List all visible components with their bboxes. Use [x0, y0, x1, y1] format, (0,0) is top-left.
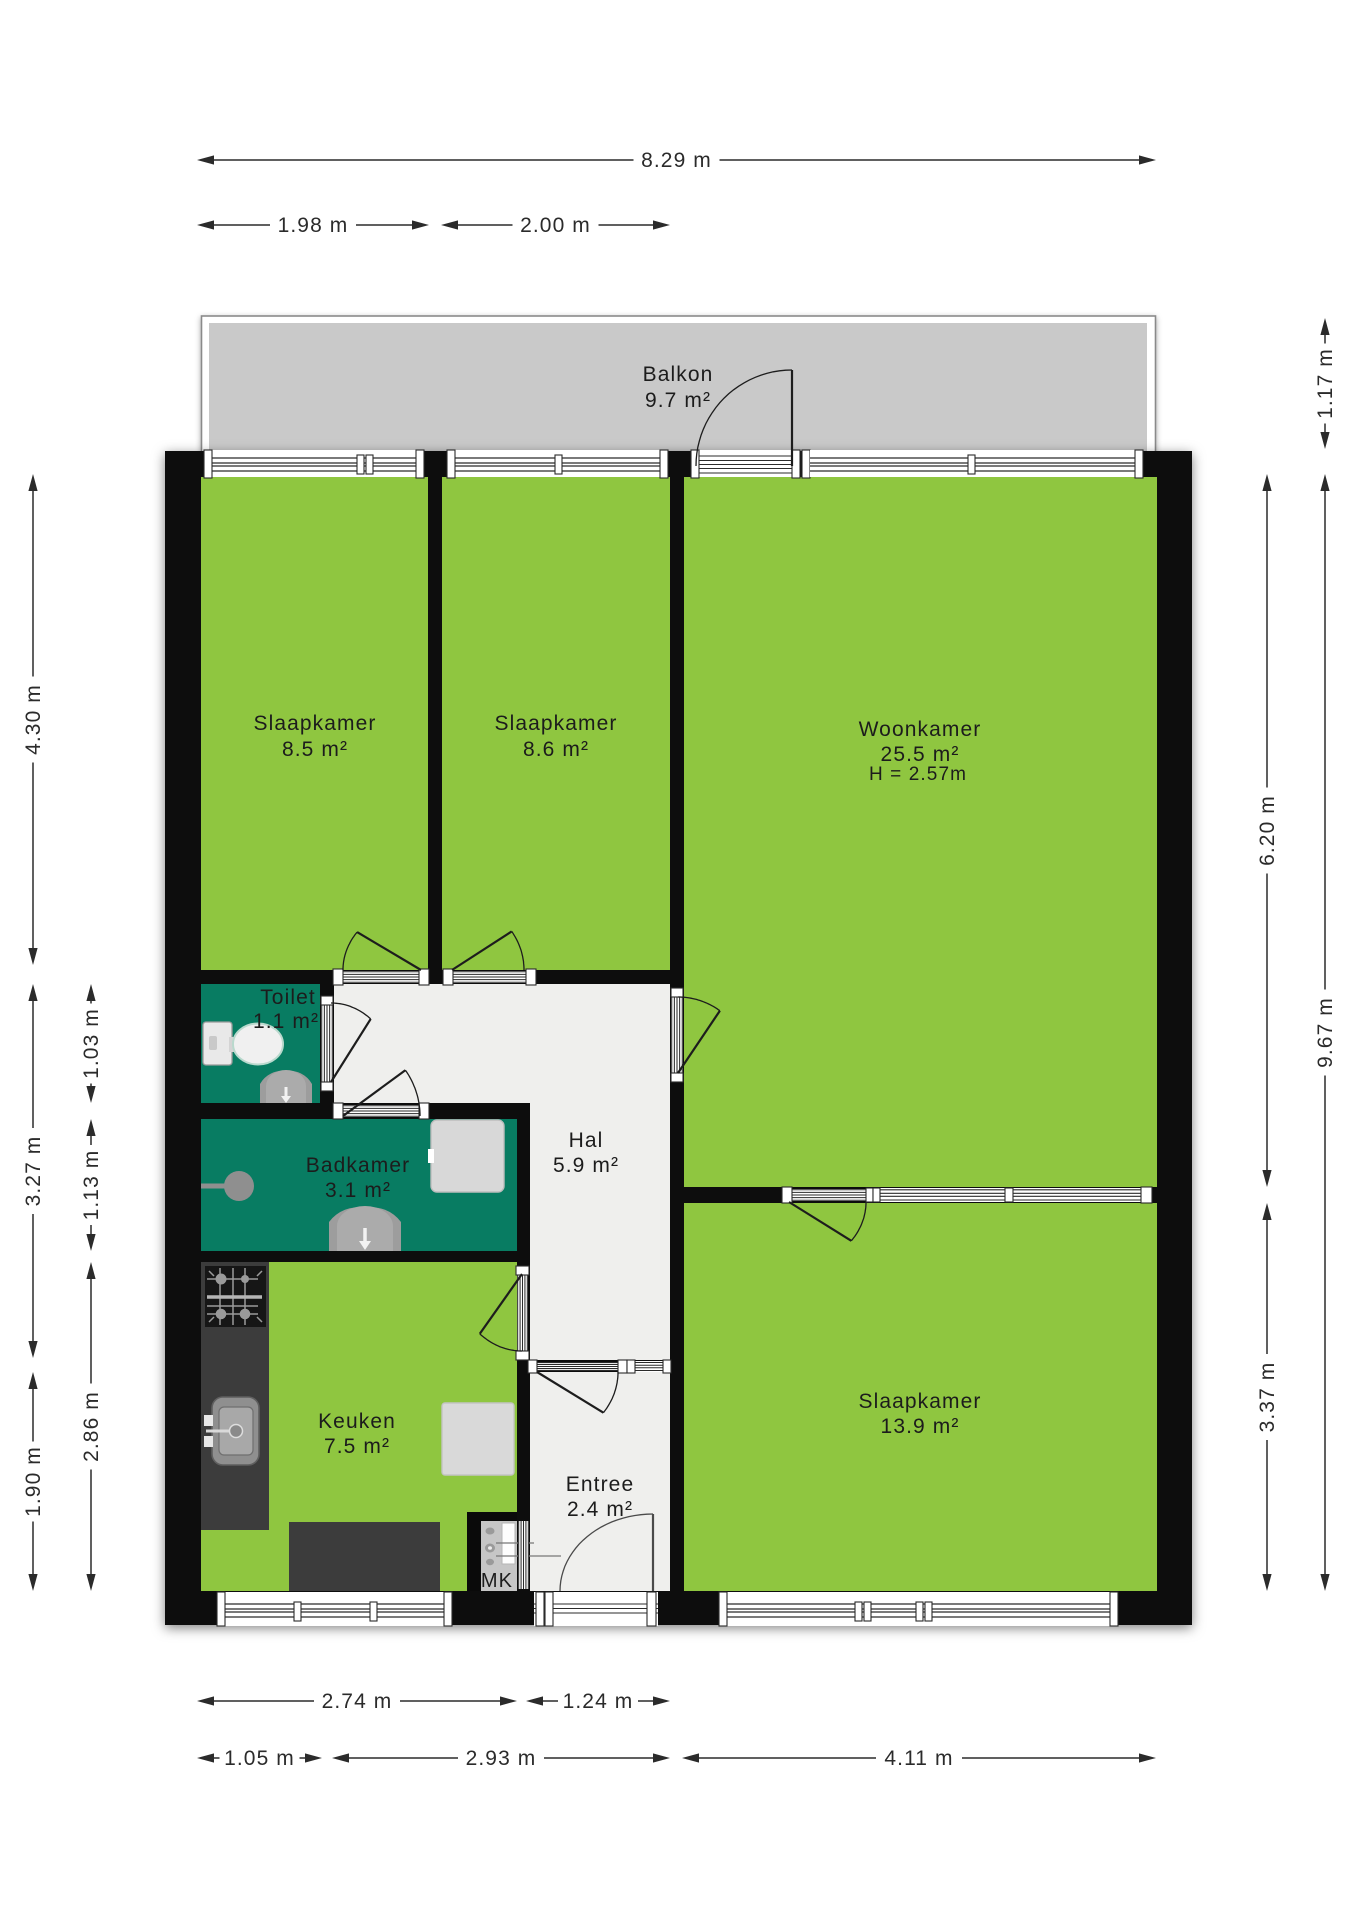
svg-text:Slaapkamer: Slaapkamer — [253, 712, 376, 735]
svg-text:9.7 m²: 9.7 m² — [645, 389, 711, 412]
svg-text:3.27 m: 3.27 m — [22, 1136, 45, 1207]
svg-text:8.29 m: 8.29 m — [641, 149, 712, 172]
svg-text:1.24 m: 1.24 m — [563, 1690, 634, 1713]
svg-text:8.5 m²: 8.5 m² — [282, 738, 348, 761]
svg-text:9.67 m: 9.67 m — [1314, 997, 1337, 1068]
svg-text:H = 2.57m: H = 2.57m — [869, 764, 967, 785]
svg-text:13.9 m²: 13.9 m² — [881, 1415, 960, 1438]
svg-text:MK: MK — [481, 1570, 513, 1592]
svg-text:2.74 m: 2.74 m — [322, 1690, 393, 1713]
svg-text:1.90 m: 1.90 m — [22, 1446, 45, 1517]
svg-text:Slaapkamer: Slaapkamer — [494, 712, 617, 735]
svg-text:Badkamer: Badkamer — [306, 1154, 411, 1177]
svg-text:1.17 m: 1.17 m — [1314, 348, 1337, 419]
svg-text:Toilet: Toilet — [260, 986, 316, 1009]
svg-text:Hal: Hal — [569, 1129, 604, 1152]
svg-text:Balkon: Balkon — [643, 363, 714, 386]
svg-text:4.30 m: 4.30 m — [22, 684, 45, 755]
svg-text:2.4 m²: 2.4 m² — [567, 1498, 633, 1521]
svg-text:1.05 m: 1.05 m — [224, 1747, 295, 1770]
svg-text:25.5 m²: 25.5 m² — [881, 743, 960, 766]
svg-text:Woonkamer: Woonkamer — [859, 718, 982, 741]
svg-text:2.86 m: 2.86 m — [80, 1391, 103, 1462]
svg-text:Keuken: Keuken — [318, 1410, 396, 1433]
svg-text:6.20 m: 6.20 m — [1256, 795, 1279, 866]
svg-text:5.9 m²: 5.9 m² — [553, 1154, 619, 1177]
svg-text:Slaapkamer: Slaapkamer — [858, 1390, 981, 1413]
svg-text:1.1 m²: 1.1 m² — [253, 1010, 319, 1033]
svg-text:1.98 m: 1.98 m — [278, 214, 349, 237]
svg-text:2.00 m: 2.00 m — [520, 214, 591, 237]
svg-text:1.13 m: 1.13 m — [80, 1150, 103, 1221]
svg-text:2.93 m: 2.93 m — [466, 1747, 537, 1770]
svg-text:3.37 m: 3.37 m — [1256, 1362, 1279, 1433]
svg-text:4.11 m: 4.11 m — [884, 1747, 953, 1770]
svg-text:7.5 m²: 7.5 m² — [324, 1435, 390, 1458]
svg-text:8.6 m²: 8.6 m² — [523, 738, 589, 761]
svg-text:3.1 m²: 3.1 m² — [325, 1179, 391, 1202]
svg-text:Entree: Entree — [566, 1473, 634, 1496]
svg-text:1.03 m: 1.03 m — [80, 1008, 103, 1079]
